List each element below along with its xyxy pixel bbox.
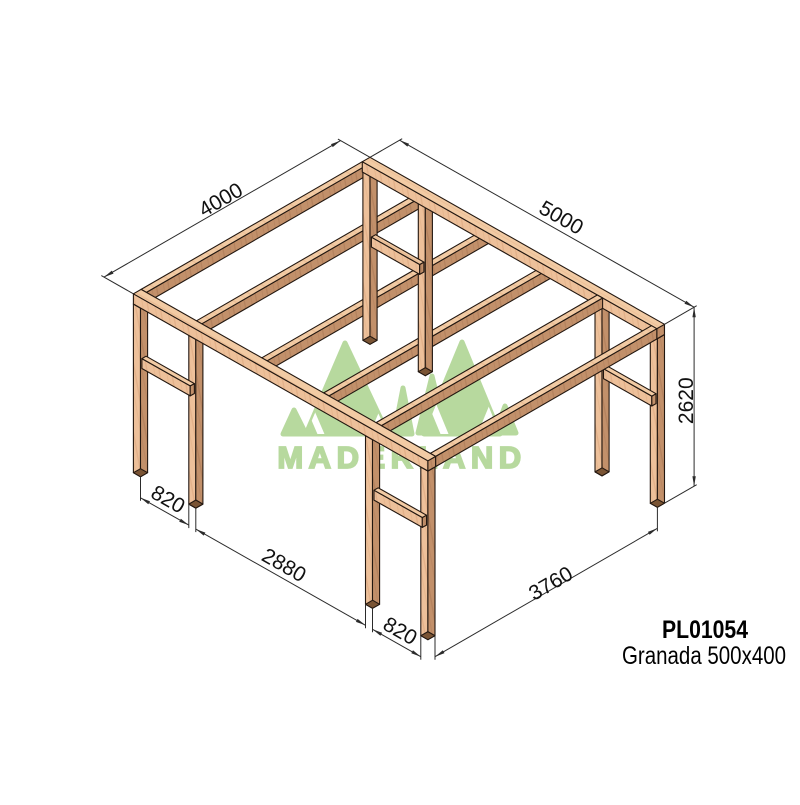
svg-text:2620: 2620 <box>675 377 698 424</box>
svg-text:PL01054: PL01054 <box>662 616 748 644</box>
svg-text:Granada 500x400: Granada 500x400 <box>622 642 786 670</box>
